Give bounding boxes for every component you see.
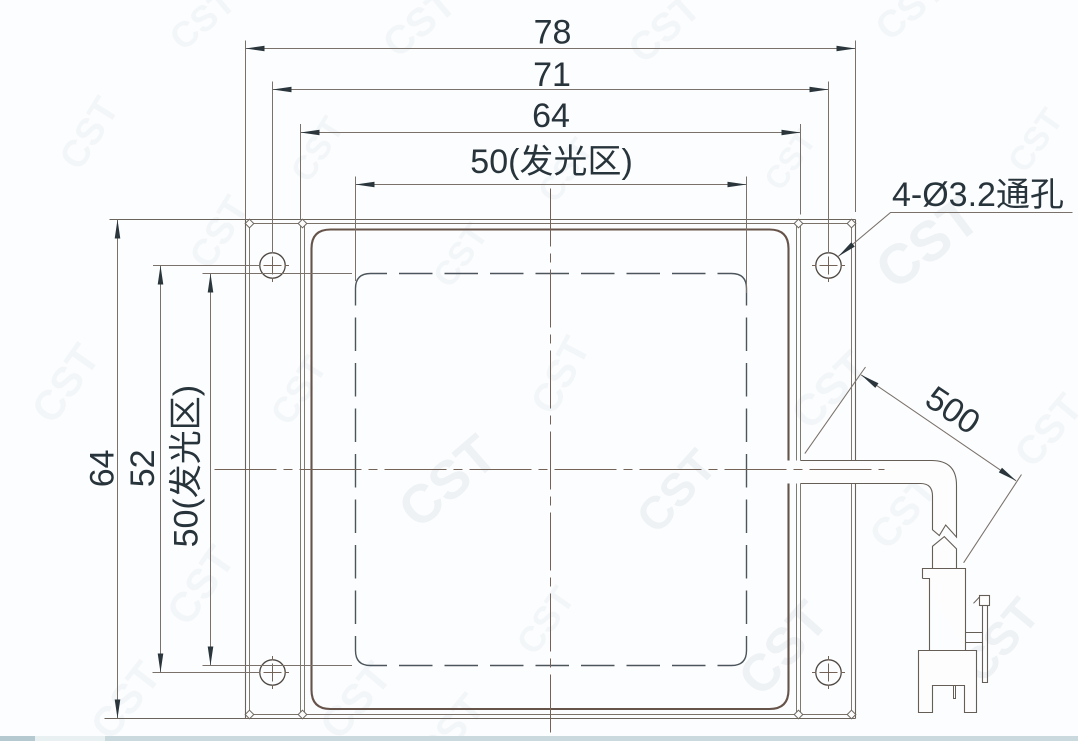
svg-text:CST: CST xyxy=(162,0,244,58)
svg-text:64: 64 xyxy=(532,97,570,135)
svg-text:CST: CST xyxy=(1001,102,1071,180)
svg-text:CST: CST xyxy=(523,330,599,421)
svg-text:CST: CST xyxy=(52,90,128,177)
svg-text:CST: CST xyxy=(408,686,493,741)
svg-text:50(: 50( xyxy=(168,498,206,548)
svg-text:CST: CST xyxy=(310,653,400,741)
svg-text:CST: CST xyxy=(1006,386,1078,476)
svg-text:CST: CST xyxy=(22,335,109,431)
svg-text:64: 64 xyxy=(84,449,122,487)
svg-text:CST: CST xyxy=(508,579,583,662)
svg-text:50(: 50( xyxy=(470,143,520,181)
svg-text:CST: CST xyxy=(182,189,258,276)
svg-text:CST: CST xyxy=(757,123,823,196)
svg-text:52: 52 xyxy=(124,449,162,487)
svg-text:71: 71 xyxy=(533,56,571,94)
svg-text:CST: CST xyxy=(387,424,508,540)
svg-text:CST: CST xyxy=(426,217,496,295)
svg-text:500: 500 xyxy=(918,379,986,442)
svg-text:4-Ø3.2: 4-Ø3.2 xyxy=(892,176,996,214)
svg-text:CST: CST xyxy=(626,439,726,542)
svg-text:CST: CST xyxy=(727,590,840,706)
svg-text:CST: CST xyxy=(375,0,465,66)
svg-text:CST: CST xyxy=(157,537,244,633)
svg-text:CST: CST xyxy=(284,110,352,188)
svg-text:CST: CST xyxy=(620,0,709,72)
svg-text:CST: CST xyxy=(81,652,170,741)
svg-text:): ) xyxy=(168,385,206,396)
svg-text:CST: CST xyxy=(262,349,335,432)
svg-text:): ) xyxy=(621,143,632,181)
svg-text:CST: CST xyxy=(868,0,953,49)
svg-text:78: 78 xyxy=(534,14,572,52)
